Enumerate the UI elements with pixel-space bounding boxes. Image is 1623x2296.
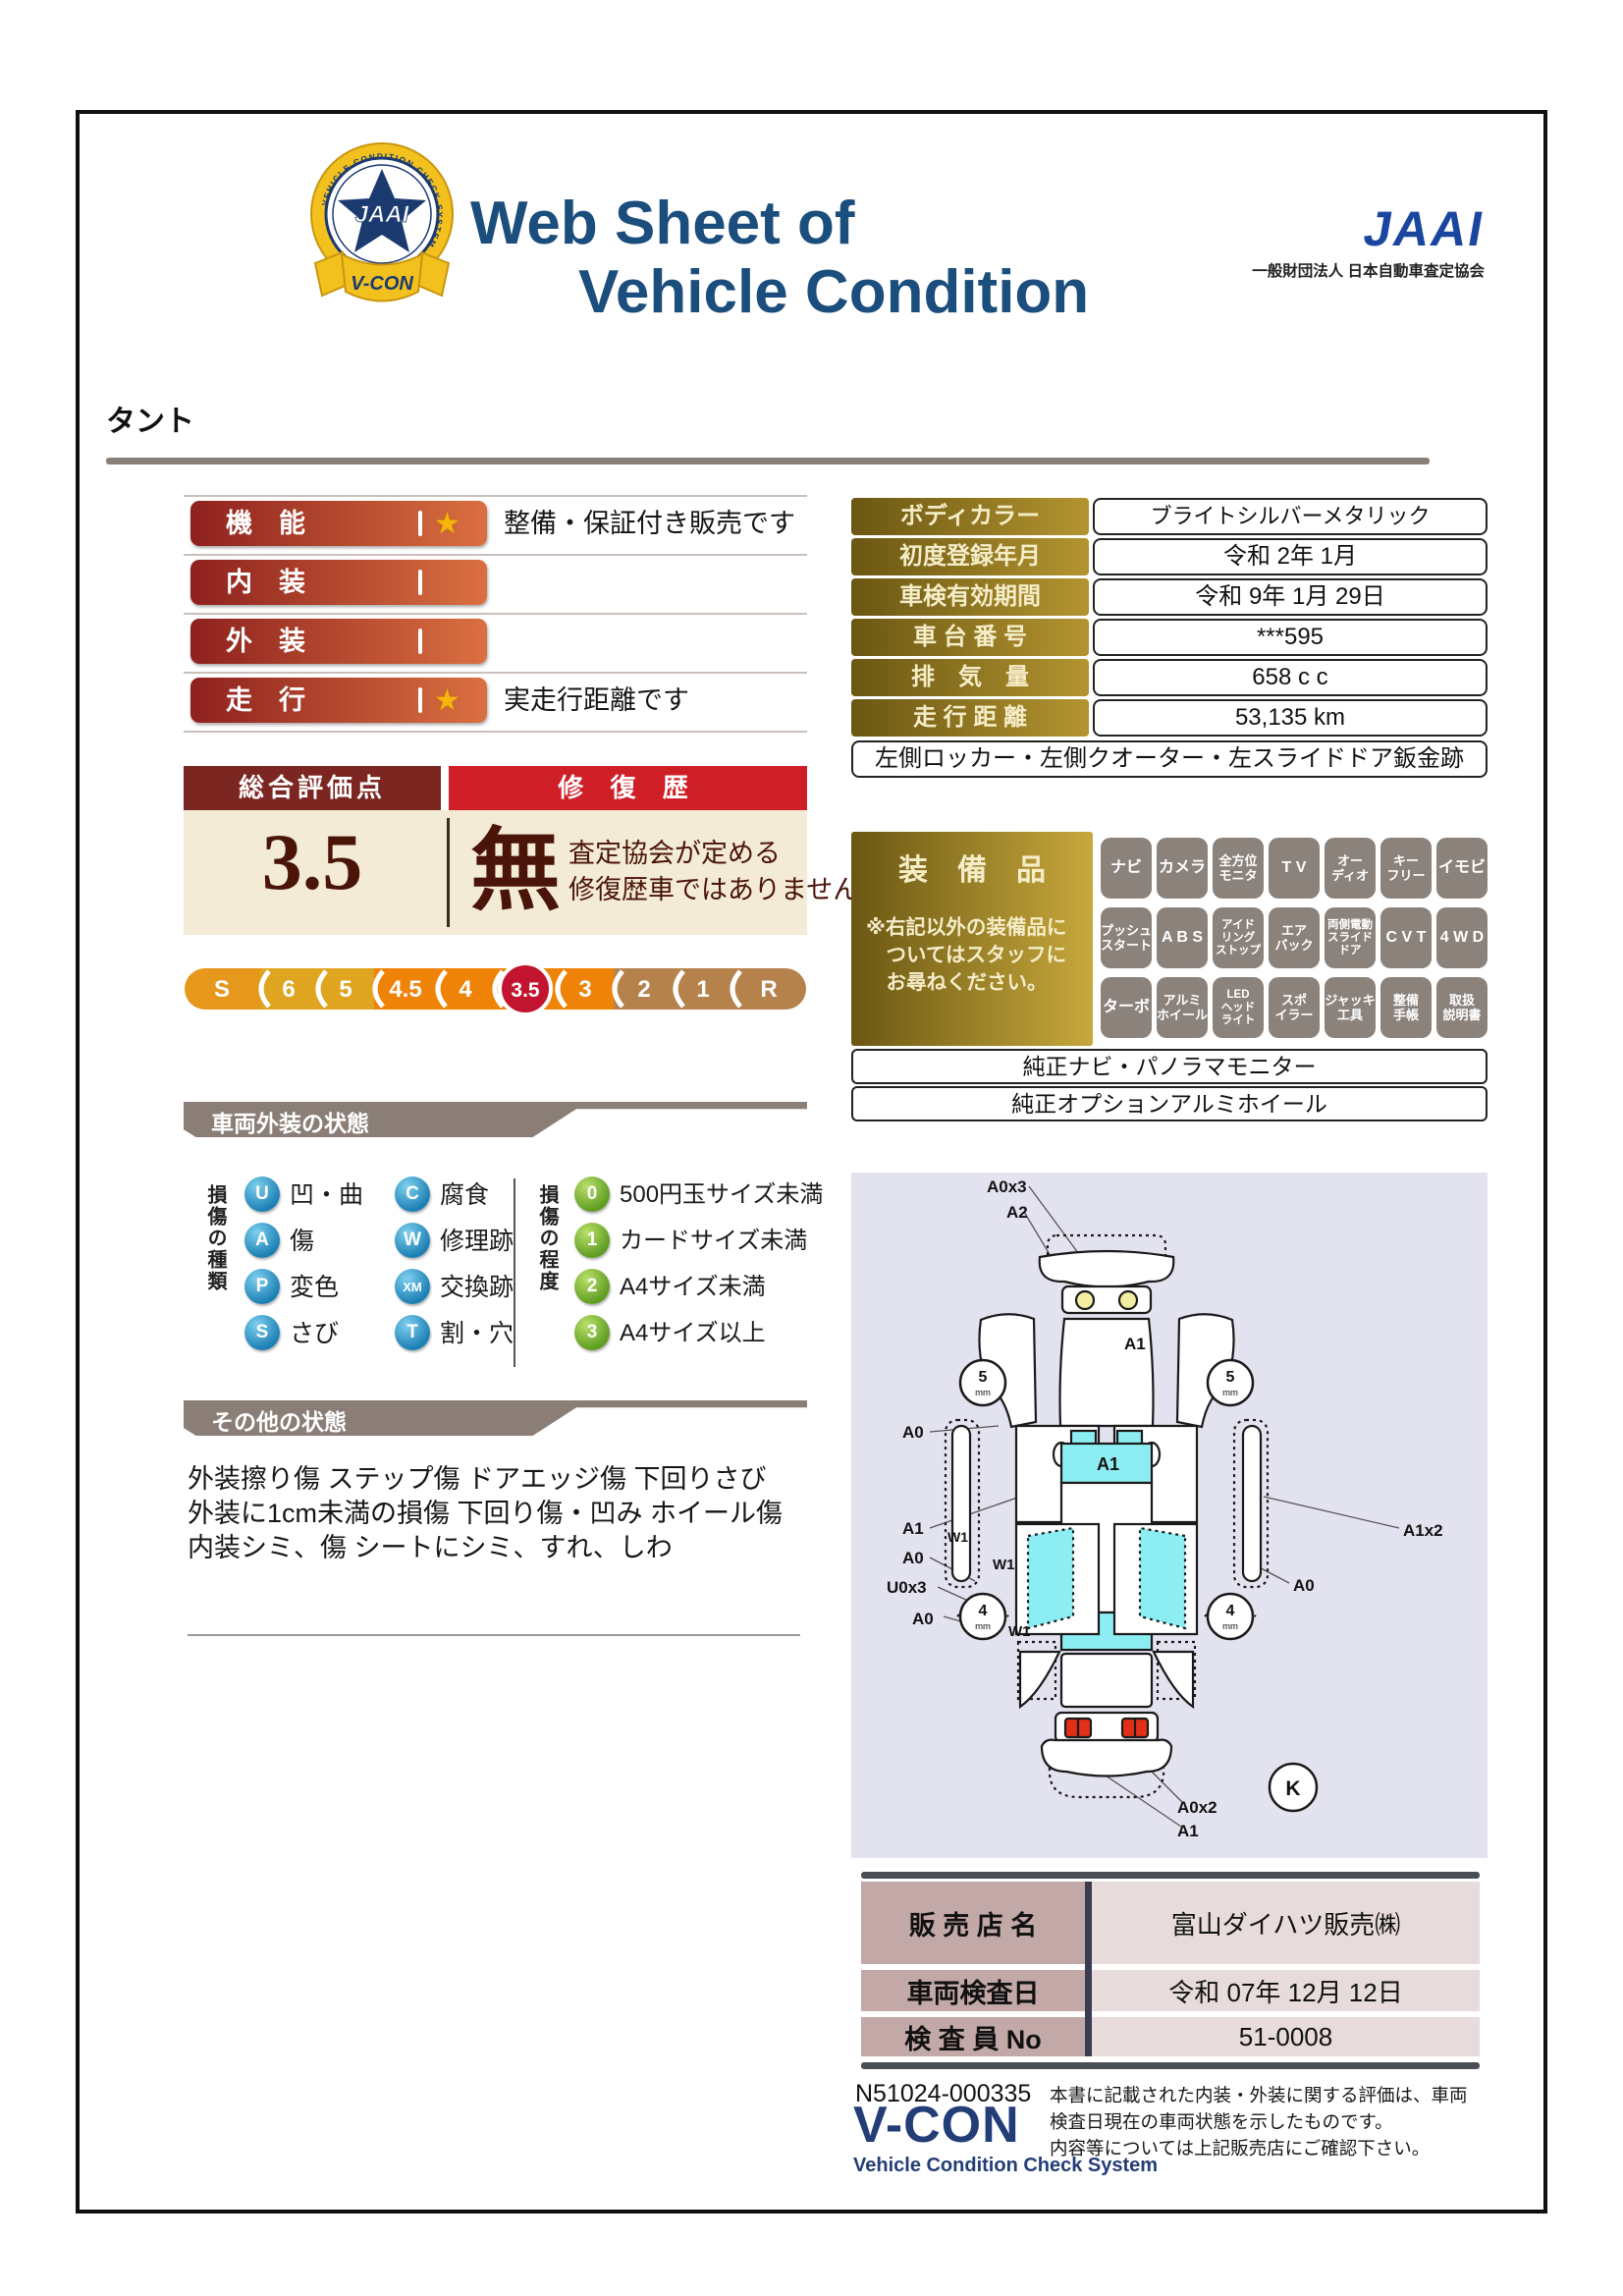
- disclaimer-line1: 本書に記載された内装・外装に関する評価は、車両: [1050, 2085, 1468, 2105]
- scale-4: 4: [459, 976, 472, 1003]
- diagram-label-windshield-a1: A1: [1097, 1454, 1119, 1474]
- damage-code-icon: XM: [395, 1269, 430, 1304]
- equipment-badge-jack-tools: ジャッキ工具: [1325, 977, 1376, 1038]
- rating-divider: [418, 687, 422, 713]
- info-value-chassis-no: ***595: [1093, 619, 1488, 656]
- diagram-label-hood-a1: A1: [1124, 1335, 1146, 1353]
- info-value-inspection-valid: 令和 9年 1月 29日: [1093, 578, 1488, 616]
- degree-label: 500円玉サイズ未満: [620, 1176, 823, 1214]
- diagram-label-a1x2: A1x2: [1403, 1521, 1443, 1540]
- equipment-badge-immobilizer: イモビ: [1436, 838, 1488, 899]
- tread-unit: mm: [975, 1388, 991, 1398]
- equipment-badge-led-headlight: LEDヘッドライト: [1213, 977, 1264, 1038]
- inspection-date-label: 車両検査日: [861, 1970, 1085, 2011]
- damage-code-label: 傷: [290, 1223, 314, 1260]
- damage-code-icon: S: [244, 1315, 280, 1350]
- inspector-no-label: 検 査 員 No: [861, 2017, 1085, 2056]
- equipment-panel: 装 備 品 ※右記以外の装備品に ついてはスタッフに お尋ねください。: [851, 832, 1093, 1046]
- title-divider: [106, 458, 1430, 465]
- sheet-title-line1: Web Sheet of: [470, 189, 855, 258]
- rating-divider: [418, 511, 422, 536]
- equipment-badge-idling-stop: アイドリングストップ: [1213, 907, 1264, 968]
- tread-unit: mm: [975, 1621, 991, 1632]
- badge-ribbon-text: V-CON: [351, 273, 413, 295]
- info-label-body-color: ボディカラー: [851, 498, 1089, 535]
- rating-separator: [184, 613, 807, 615]
- damage-code-label: 修理跡: [440, 1223, 514, 1260]
- scale-5: 5: [339, 976, 352, 1003]
- scale-2: 2: [637, 976, 650, 1003]
- diagram-label-a0x2: A0x2: [1177, 1798, 1217, 1817]
- equipment-badge-abs: A B S: [1157, 907, 1208, 968]
- summary-divider: [447, 818, 450, 927]
- rating-note: 実走行距離です: [504, 678, 689, 723]
- vcon-badge-logo-icon: VEHICLE CONDITION CHECK SYSTEM JAAI V-CO…: [298, 136, 466, 330]
- repair-location-note: 左側ロッカー・左側クオーター・左スライドドア鈑金跡: [851, 740, 1488, 778]
- legend-divider: [514, 1178, 515, 1367]
- diagram-label-rear-a1: A1: [1177, 1822, 1199, 1840]
- scale-4_5: 4.5: [389, 976, 421, 1003]
- damage-code-label: 腐食: [440, 1176, 489, 1214]
- equipment-extra2: 純正オプションアルミホイール: [851, 1086, 1488, 1121]
- rating-bar-mileage: 走 行 ★: [190, 678, 487, 723]
- rating-label: 機 能: [226, 501, 305, 546]
- damage-type-label: 損傷の種類: [201, 1184, 230, 1292]
- equipment-badge-service-book: 整備手帳: [1380, 977, 1432, 1038]
- dealer-table-divider: [1085, 1882, 1092, 2056]
- info-value-mileage: 53,135 km: [1093, 699, 1488, 737]
- diagram-label-w1-c: W1: [1008, 1623, 1031, 1640]
- rating-label: 外 装: [226, 619, 305, 664]
- diagram-label-left-a0-top: A0: [902, 1423, 924, 1442]
- tread-front-left: 5: [979, 1369, 988, 1386]
- scale-1: 1: [696, 976, 709, 1003]
- info-value-first-registration: 令和 2年 1月: [1093, 538, 1488, 575]
- rating-divider: [418, 570, 422, 595]
- rating-separator: [184, 495, 807, 497]
- repair-history-value: 無: [470, 812, 561, 930]
- diagram-label-w1-b: W1: [993, 1557, 1015, 1573]
- rating-bar-interior: 内 装: [190, 560, 487, 605]
- equipment-badge-4wd: 4 W D: [1436, 907, 1488, 968]
- tread-rear-right: 4: [1226, 1603, 1235, 1619]
- degree-label: A4サイズ以上: [620, 1315, 766, 1352]
- vehicle-condition-sheet: VEHICLE CONDITION CHECK SYSTEM JAAI V-CO…: [0, 0, 1623, 2296]
- rating-separator: [184, 554, 807, 556]
- equipment-badge-owners-manual: 取扱説明書: [1436, 977, 1488, 1038]
- jaai-organization-name: 一般財団法人 日本自動車査定協会: [1217, 259, 1485, 281]
- rating-label: 走 行: [226, 678, 305, 723]
- rating-label: 内 装: [226, 560, 305, 605]
- other-condition-line3: 内装シミ、傷 シートにシミ、すれ、しわ: [188, 1526, 673, 1564]
- info-label-first-registration: 初度登録年月: [851, 538, 1089, 575]
- degree-code-icon: 1: [574, 1223, 610, 1258]
- equipment-badge-camera: カメラ: [1157, 838, 1208, 899]
- disclaimer-line3: 内容等については上記販売店にご確認下さい。: [1050, 2138, 1430, 2159]
- jaai-logo-text: JAAI: [1360, 200, 1489, 257]
- info-label-mileage: 走 行 距 離: [851, 699, 1089, 737]
- damage-code-label: 変色: [290, 1269, 339, 1306]
- repair-note-line2: 修復歴車ではありません: [568, 875, 859, 904]
- rating-bar-function: 機 能 ★: [190, 501, 487, 546]
- degree-code-icon: 3: [574, 1315, 610, 1350]
- equipment-badge-cvt: C V T: [1380, 907, 1432, 968]
- damage-code-icon: T: [395, 1315, 430, 1350]
- equipment-extra1: 純正ナビ・パノラマモニター: [851, 1049, 1488, 1084]
- diagram-label-left-a0-mid: A0: [902, 1549, 924, 1567]
- repair-history-note: 査定協会が定める 修復歴車ではありません: [568, 836, 859, 908]
- exterior-condition-header: 車両外装の状態: [184, 1102, 807, 1137]
- equipment-badge-audio: オーディオ: [1325, 838, 1376, 899]
- tread-unit: mm: [1222, 1388, 1238, 1398]
- diagram-label-w1-a: W1: [947, 1529, 968, 1545]
- sheet-title-line2: Vehicle Condition: [578, 257, 1089, 327]
- degree-label: カードサイズ未満: [620, 1223, 807, 1260]
- damage-code-icon: C: [395, 1176, 430, 1212]
- section-bottom-line: [188, 1634, 800, 1636]
- equipment-badge-airbag: エアバック: [1269, 907, 1320, 968]
- tread-unit: mm: [1222, 1621, 1238, 1632]
- equipment-note-line3: お尋ねください。: [866, 971, 1048, 994]
- diagram-label-a0x3: A0x3: [987, 1177, 1027, 1196]
- other-condition-line1: 外装擦り傷 ステップ傷 ドアエッジ傷 下回りさび: [188, 1457, 767, 1496]
- tread-rear-left: 4: [979, 1603, 988, 1619]
- rating-separator: [184, 672, 807, 674]
- damage-degree-label: 損傷の程度: [533, 1184, 562, 1292]
- jaai-logo: JAAI 一般財団法人 日本自動車査定協会: [1217, 200, 1485, 281]
- info-value-body-color: ブライトシルバーメタリック: [1093, 498, 1488, 535]
- damage-code-label: 凹・曲: [290, 1176, 363, 1214]
- damage-code-icon: W: [395, 1223, 430, 1258]
- equipment-badge-spoiler: スポイラー: [1269, 977, 1320, 1038]
- equipment-badge-keyfree: キーフリー: [1380, 838, 1432, 899]
- equipment-badge-alloy-wheels: アルミホイール: [1157, 977, 1208, 1038]
- tread-front-right: 5: [1226, 1369, 1235, 1386]
- overall-score-value: 3.5: [184, 816, 441, 908]
- vcon-logo-text: V-CON: [853, 2096, 1020, 2155]
- car-damage-diagram: A0x3 A2 A1 A1 A0 A1 W1 A0 U0x3 A0 W1 W1 …: [851, 1173, 1488, 1858]
- degree-code-icon: 2: [574, 1269, 610, 1304]
- dealer-name-label: 販 売 店 名: [861, 1882, 1085, 1964]
- diagram-label-u0x3: U0x3: [887, 1578, 927, 1597]
- equipment-badge-power-slide-doors: 両側電動スライドドア: [1325, 907, 1376, 968]
- info-label-chassis-no: 車 台 番 号: [851, 619, 1089, 656]
- info-value-displacement: 658 c c: [1093, 659, 1488, 696]
- diagram-label-right-a0: A0: [1293, 1576, 1315, 1595]
- equipment-badge-around-monitor: 全方位モニタ: [1213, 838, 1264, 899]
- equipment-title: 装 備 品: [851, 846, 1093, 889]
- dealer-name-value: 富山ダイハツ販売㈱: [1092, 1882, 1480, 1964]
- scale-S: S: [214, 976, 230, 1003]
- star-icon: ★: [434, 678, 460, 723]
- equipment-badge-navi: ナビ: [1101, 838, 1152, 899]
- diagram-k-mark: K: [1285, 1777, 1300, 1800]
- equipment-note-line2: ついてはスタッフに: [866, 944, 1066, 966]
- degree-code-icon: 0: [574, 1176, 610, 1212]
- equipment-note: ※右記以外の装備品に ついてはスタッフに お尋ねください。: [866, 914, 1066, 997]
- equipment-note-line1: ※右記以外の装備品に: [866, 916, 1066, 939]
- disclaimer-text: 本書に記載された内装・外装に関する評価は、車両 検査日現在の車両状態を示したもの…: [1050, 2082, 1501, 2161]
- scale-R: R: [760, 976, 777, 1003]
- diagram-label-left-a1: A1: [902, 1519, 924, 1538]
- disclaimer-line2: 検査日現在の車両状態を示したものです。: [1050, 2111, 1393, 2132]
- dealer-table-bottom-bar: [861, 2062, 1480, 2069]
- equipment-badge-turbo: ターボ: [1101, 977, 1152, 1038]
- other-condition-header: その他の状態: [184, 1400, 807, 1436]
- inspection-date-value: 令和 07年 12月 12日: [1092, 1970, 1480, 2011]
- vehicle-name: タント: [106, 397, 194, 440]
- degree-label: A4サイズ未満: [620, 1269, 766, 1306]
- sheet-frame: VEHICLE CONDITION CHECK SYSTEM JAAI V-CO…: [76, 110, 1547, 2214]
- info-label-inspection-valid: 車検有効期間: [851, 578, 1089, 616]
- damage-code-icon: U: [244, 1176, 280, 1212]
- scale-3: 3: [578, 976, 591, 1003]
- diagram-label-left-a0-low: A0: [912, 1610, 934, 1628]
- repair-history-header: 修 復 歴: [449, 766, 807, 810]
- damage-code-label: さび: [290, 1315, 339, 1352]
- overall-score-header: 総合評価点: [184, 766, 441, 810]
- scale-6: 6: [282, 976, 295, 1003]
- dealer-table-top-bar: [861, 1872, 1480, 1879]
- badge-jaai-text: JAAI: [355, 201, 410, 228]
- summary-body: 3.5 無 査定協会が定める 修復歴車ではありません: [184, 810, 807, 935]
- inspector-no-value: 51-0008: [1092, 2017, 1480, 2056]
- rating-separator: [184, 731, 807, 733]
- info-label-displacement: 排 気 量: [851, 659, 1089, 696]
- rating-note: 整備・保証付き販売です: [504, 501, 795, 546]
- selected-score-value: 3.5: [511, 979, 540, 1002]
- other-condition-line2: 外装に1cm未満の損傷 下回り傷・凹み ホイール傷: [188, 1492, 783, 1530]
- equipment-badge-tv: T V: [1269, 838, 1320, 899]
- damage-code-icon: P: [244, 1269, 280, 1304]
- rating-divider: [418, 629, 422, 654]
- damage-code-icon: A: [244, 1223, 280, 1258]
- damage-code-label: 割・穴: [440, 1315, 514, 1352]
- repair-note-line1: 査定協会が定める: [568, 839, 781, 868]
- rating-bar-exterior: 外 装: [190, 619, 487, 664]
- diagram-label-a2: A2: [1006, 1203, 1028, 1222]
- equipment-grid: ナビ カメラ 全方位モニタ T V オーディオ キーフリー イモビ プッシュスタ…: [1101, 838, 1488, 1038]
- damage-code-label: 交換跡: [440, 1269, 514, 1306]
- equipment-badge-push-start: プッシュスタート: [1101, 907, 1152, 968]
- score-scale: S 6 5 4.5 4 3 2 1 R 3.5: [184, 964, 807, 1015]
- star-icon: ★: [434, 501, 460, 546]
- damage-legend: 損傷の種類 U 凹・曲 A 傷 P 変色 S さび C 腐食 W: [184, 1176, 812, 1373]
